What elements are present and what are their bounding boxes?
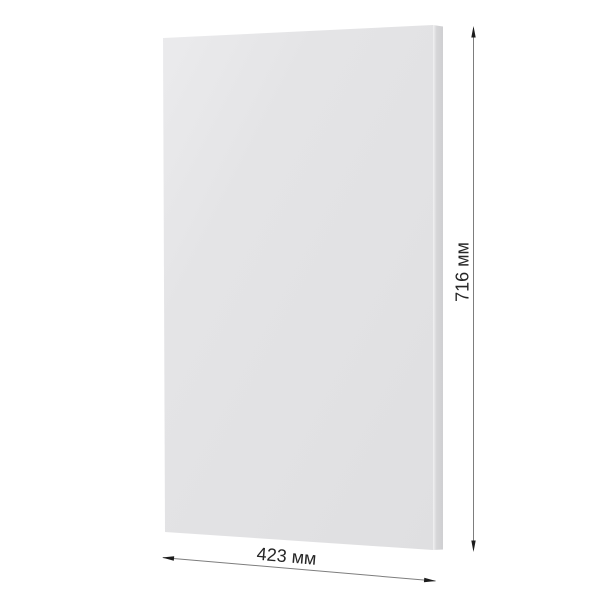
panel-side-edge — [433, 25, 443, 550]
dimension-arrow-left-icon — [162, 556, 174, 560]
dimension-arrow-down-icon — [471, 541, 475, 553]
height-dimension-label: 716 мм — [452, 242, 472, 302]
dimension-arrow-up-icon — [471, 26, 475, 38]
product-dimension-image: 716 мм 423 мм — [0, 0, 600, 600]
dimension-arrow-right-icon — [424, 578, 436, 582]
panel-face — [163, 25, 433, 550]
dimension-diagram: 716 мм 423 мм — [0, 0, 600, 600]
width-dimension-label: 423 мм — [256, 544, 317, 569]
